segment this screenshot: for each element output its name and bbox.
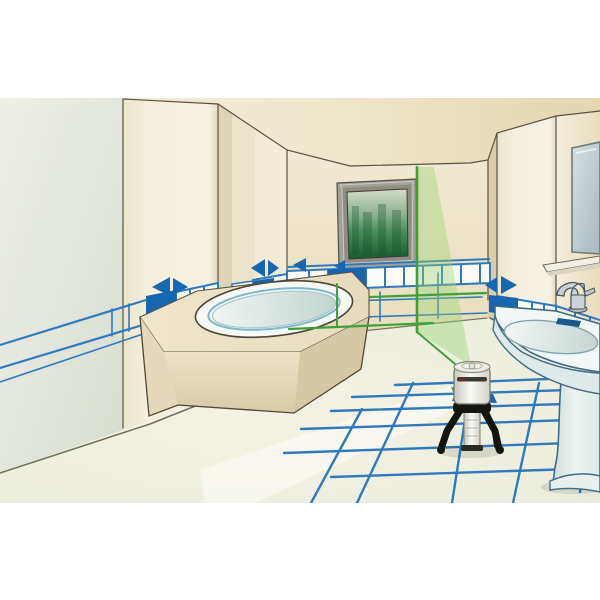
device-laser-aperture xyxy=(459,378,465,382)
illustration-canvas xyxy=(0,0,600,600)
left-wall xyxy=(0,98,123,473)
device-top-button xyxy=(469,363,475,369)
faucet-body xyxy=(571,295,585,309)
window xyxy=(337,179,417,269)
right-pillar-side-face xyxy=(488,133,497,321)
device-base-cap xyxy=(461,445,483,451)
mirror xyxy=(572,142,600,254)
bathroom-laser-illustration xyxy=(0,0,600,600)
sink-pedestal xyxy=(553,381,600,483)
tub-front-face xyxy=(164,352,300,413)
tripod-foot-right xyxy=(496,446,504,454)
tripod-foot-left xyxy=(437,446,445,454)
device-column xyxy=(464,410,480,448)
